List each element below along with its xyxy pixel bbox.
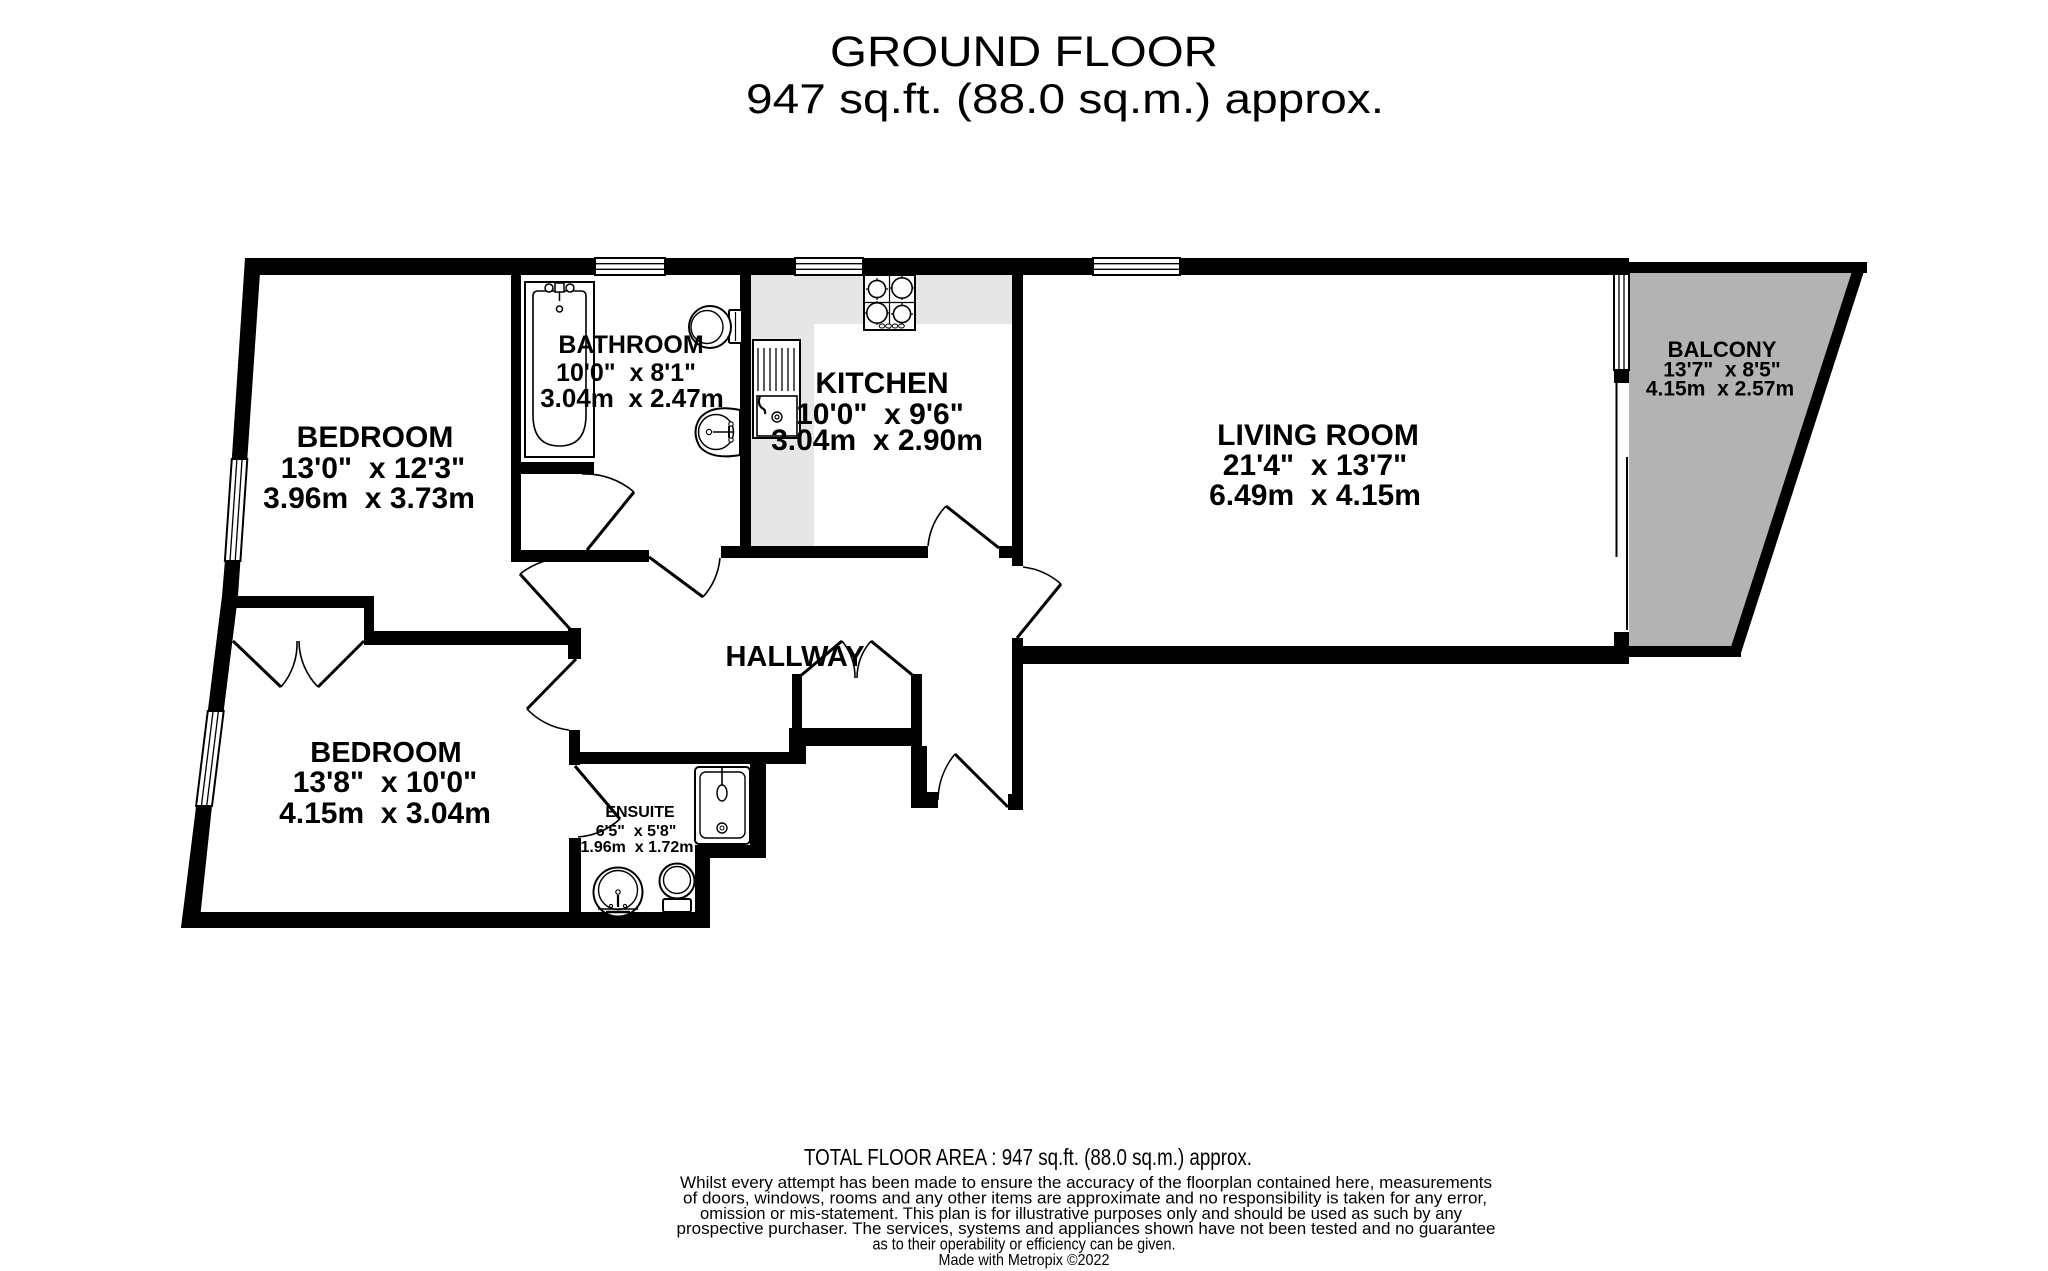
- svg-text:4.15m x 3.04m: 4.15m x 3.04m: [279, 797, 491, 830]
- svg-text:1.96m x 1.72m: 1.96m x 1.72m: [581, 839, 694, 856]
- svg-text:Made with Metropix ©2022: Made with Metropix ©2022: [939, 1252, 1110, 1269]
- svg-text:3.04m x 2.47m: 3.04m x 2.47m: [540, 383, 724, 413]
- svg-text:KITCHEN: KITCHEN: [815, 367, 948, 400]
- svg-text:3.96m x 3.73m: 3.96m x 3.73m: [263, 482, 475, 515]
- svg-text:947 sq.ft. (88.0 sq.m.) approx: 947 sq.ft. (88.0 sq.m.) approx.: [746, 75, 1384, 122]
- svg-text:HALLWAY: HALLWAY: [725, 641, 864, 673]
- svg-text:BEDROOM: BEDROOM: [310, 737, 461, 769]
- svg-text:as to their operability or eff: as to their operability or efficiency ca…: [873, 1236, 1176, 1254]
- svg-text:GROUND FLOOR: GROUND FLOOR: [830, 28, 1218, 76]
- svg-text:TOTAL FLOOR AREA : 947 sq.ft.: TOTAL FLOOR AREA : 947 sq.ft. (88.0 sq.m…: [804, 1144, 1252, 1170]
- svg-text:4.15m x 2.57m: 4.15m x 2.57m: [1646, 378, 1794, 401]
- svg-text:BEDROOM: BEDROOM: [297, 421, 454, 454]
- svg-text:LIVING ROOM: LIVING ROOM: [1217, 419, 1419, 452]
- svg-text:3.04m x 2.90m: 3.04m x 2.90m: [771, 424, 983, 457]
- svg-text:13'8" x 10'0": 13'8" x 10'0": [293, 766, 478, 799]
- svg-text:BATHROOM: BATHROOM: [558, 331, 703, 359]
- svg-text:6.49m x 4.15m: 6.49m x 4.15m: [1209, 479, 1421, 512]
- svg-text:21'4" x 13'7": 21'4" x 13'7": [1223, 449, 1408, 482]
- svg-text:6'5" x 5'8": 6'5" x 5'8": [596, 823, 677, 840]
- svg-text:13'0" x 12'3": 13'0" x 12'3": [281, 452, 466, 485]
- svg-text:ENSUITE: ENSUITE: [605, 804, 675, 821]
